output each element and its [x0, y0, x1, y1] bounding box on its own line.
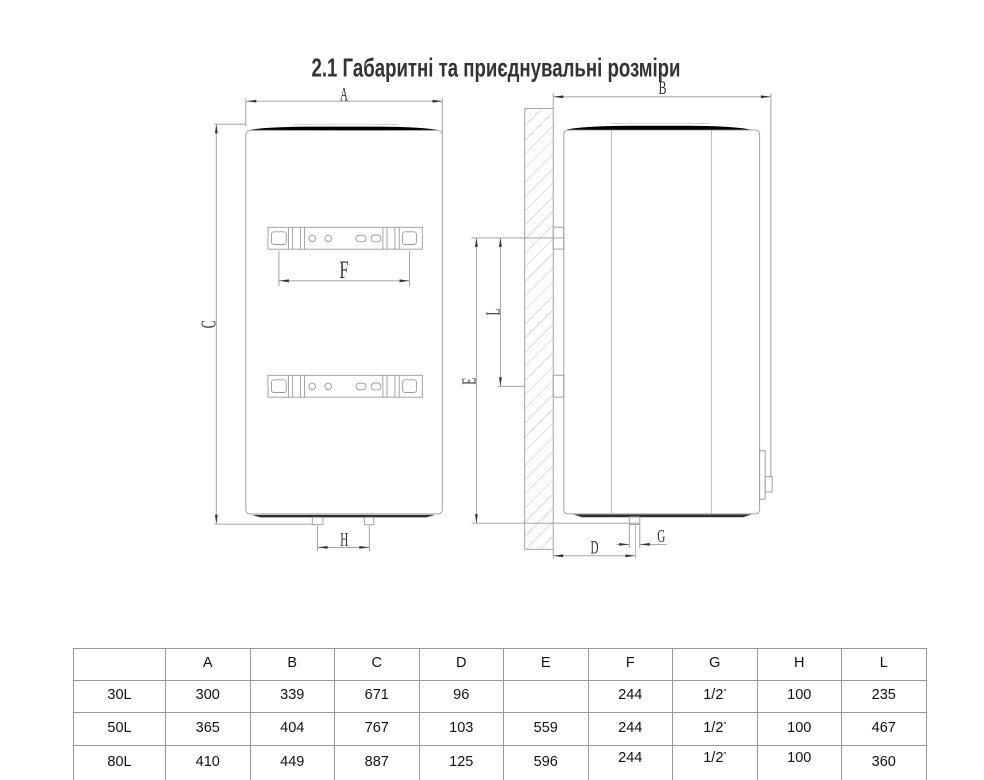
svg-text:D: D [591, 538, 599, 558]
svg-text:F: F [340, 257, 349, 284]
svg-text:B: B [659, 78, 667, 99]
svg-text:E: E [459, 378, 481, 385]
svg-text:2.1 Габаритні та приєднувальні: 2.1 Габаритні та приєднувальні розміри [312, 53, 681, 83]
svg-text:A: A [340, 84, 348, 105]
svg-text:C: C [197, 320, 221, 328]
svg-text:H: H [340, 530, 348, 551]
svg-text:L: L [482, 309, 504, 316]
svg-text:G: G [657, 526, 665, 546]
